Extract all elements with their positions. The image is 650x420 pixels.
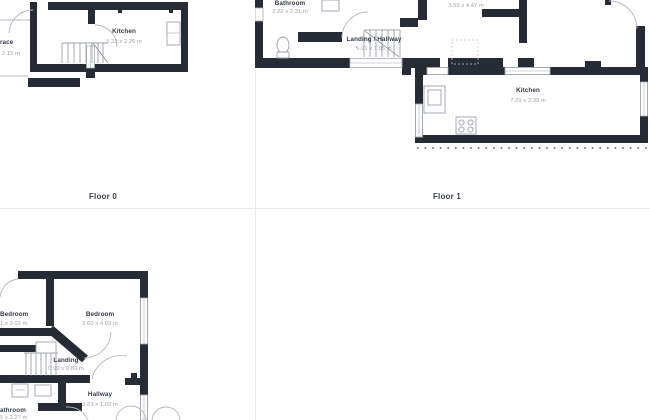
room-dims: 7.29 x 2.39 m <box>510 98 546 104</box>
room-label: Hallway <box>88 391 113 398</box>
door-arc-icon <box>116 406 131 420</box>
room-dims: 1 x 3.02 m <box>0 321 28 327</box>
stairs-icon <box>62 43 108 63</box>
floor-1-label: Floor 1 <box>407 192 487 201</box>
room-label: Landing <box>53 357 78 364</box>
floor-2-walls <box>0 271 148 420</box>
floor-2-plan: Bedroom 1 x 3.02 m Bedroom 3.60 x 4.03 m… <box>0 260 185 420</box>
room-dims: 3.59 x 4.47 m <box>448 3 484 9</box>
room-label: Kitchen <box>112 28 136 35</box>
room-dims: 3.83 x 1.82 m <box>82 402 118 408</box>
room-dims: 2.22 x 2.31 m <box>272 9 308 15</box>
room-label: Bathroom <box>275 0 306 7</box>
room-dims: 2.15 m <box>2 51 20 57</box>
door-arc-icon <box>92 355 127 379</box>
room-label: athroom <box>0 407 26 414</box>
room-dims: 5.22 x 2.26 m <box>106 39 142 45</box>
room-label: race <box>0 39 14 46</box>
door-arc-icon <box>0 279 18 297</box>
door-arc-icon <box>84 332 111 358</box>
floor-0-plan: Kitchen 5.22 x 2.26 m race 2.15 m <box>0 0 195 95</box>
floor-0-label: Floor 0 <box>63 192 143 201</box>
door-arc-icon <box>9 10 33 33</box>
door-arc-icon <box>609 1 637 29</box>
room-dims: 5 x 2.27 m <box>0 415 28 420</box>
floor-1-walls <box>255 0 648 143</box>
stairs-icon <box>364 30 400 57</box>
floorplan-page: Kitchen 5.22 x 2.26 m race 2.15 m Floor … <box>0 0 650 420</box>
counter-icon <box>167 22 180 45</box>
room-label: Bedroom <box>86 311 115 318</box>
stove-icon <box>456 117 476 134</box>
door-arc-icon <box>166 407 180 420</box>
grid-divider-horizontal <box>0 208 650 209</box>
floor-1-plan: Bathroom 2.22 x 2.31 m Landing / Hallway… <box>255 0 650 160</box>
room-label: Kitchen <box>516 87 540 94</box>
room-label: Bedroom <box>0 311 29 318</box>
window-icon <box>87 46 95 68</box>
room-dims: 0.99 x 0.89 m <box>48 366 84 372</box>
room-dims: 5.91 x 1.85 m <box>356 46 392 52</box>
door-arc-icon <box>152 407 166 420</box>
room-dims: 3.60 x 4.03 m <box>82 321 118 327</box>
toilet-icon <box>277 37 289 58</box>
room-label: Landing / Hallway <box>347 36 402 43</box>
